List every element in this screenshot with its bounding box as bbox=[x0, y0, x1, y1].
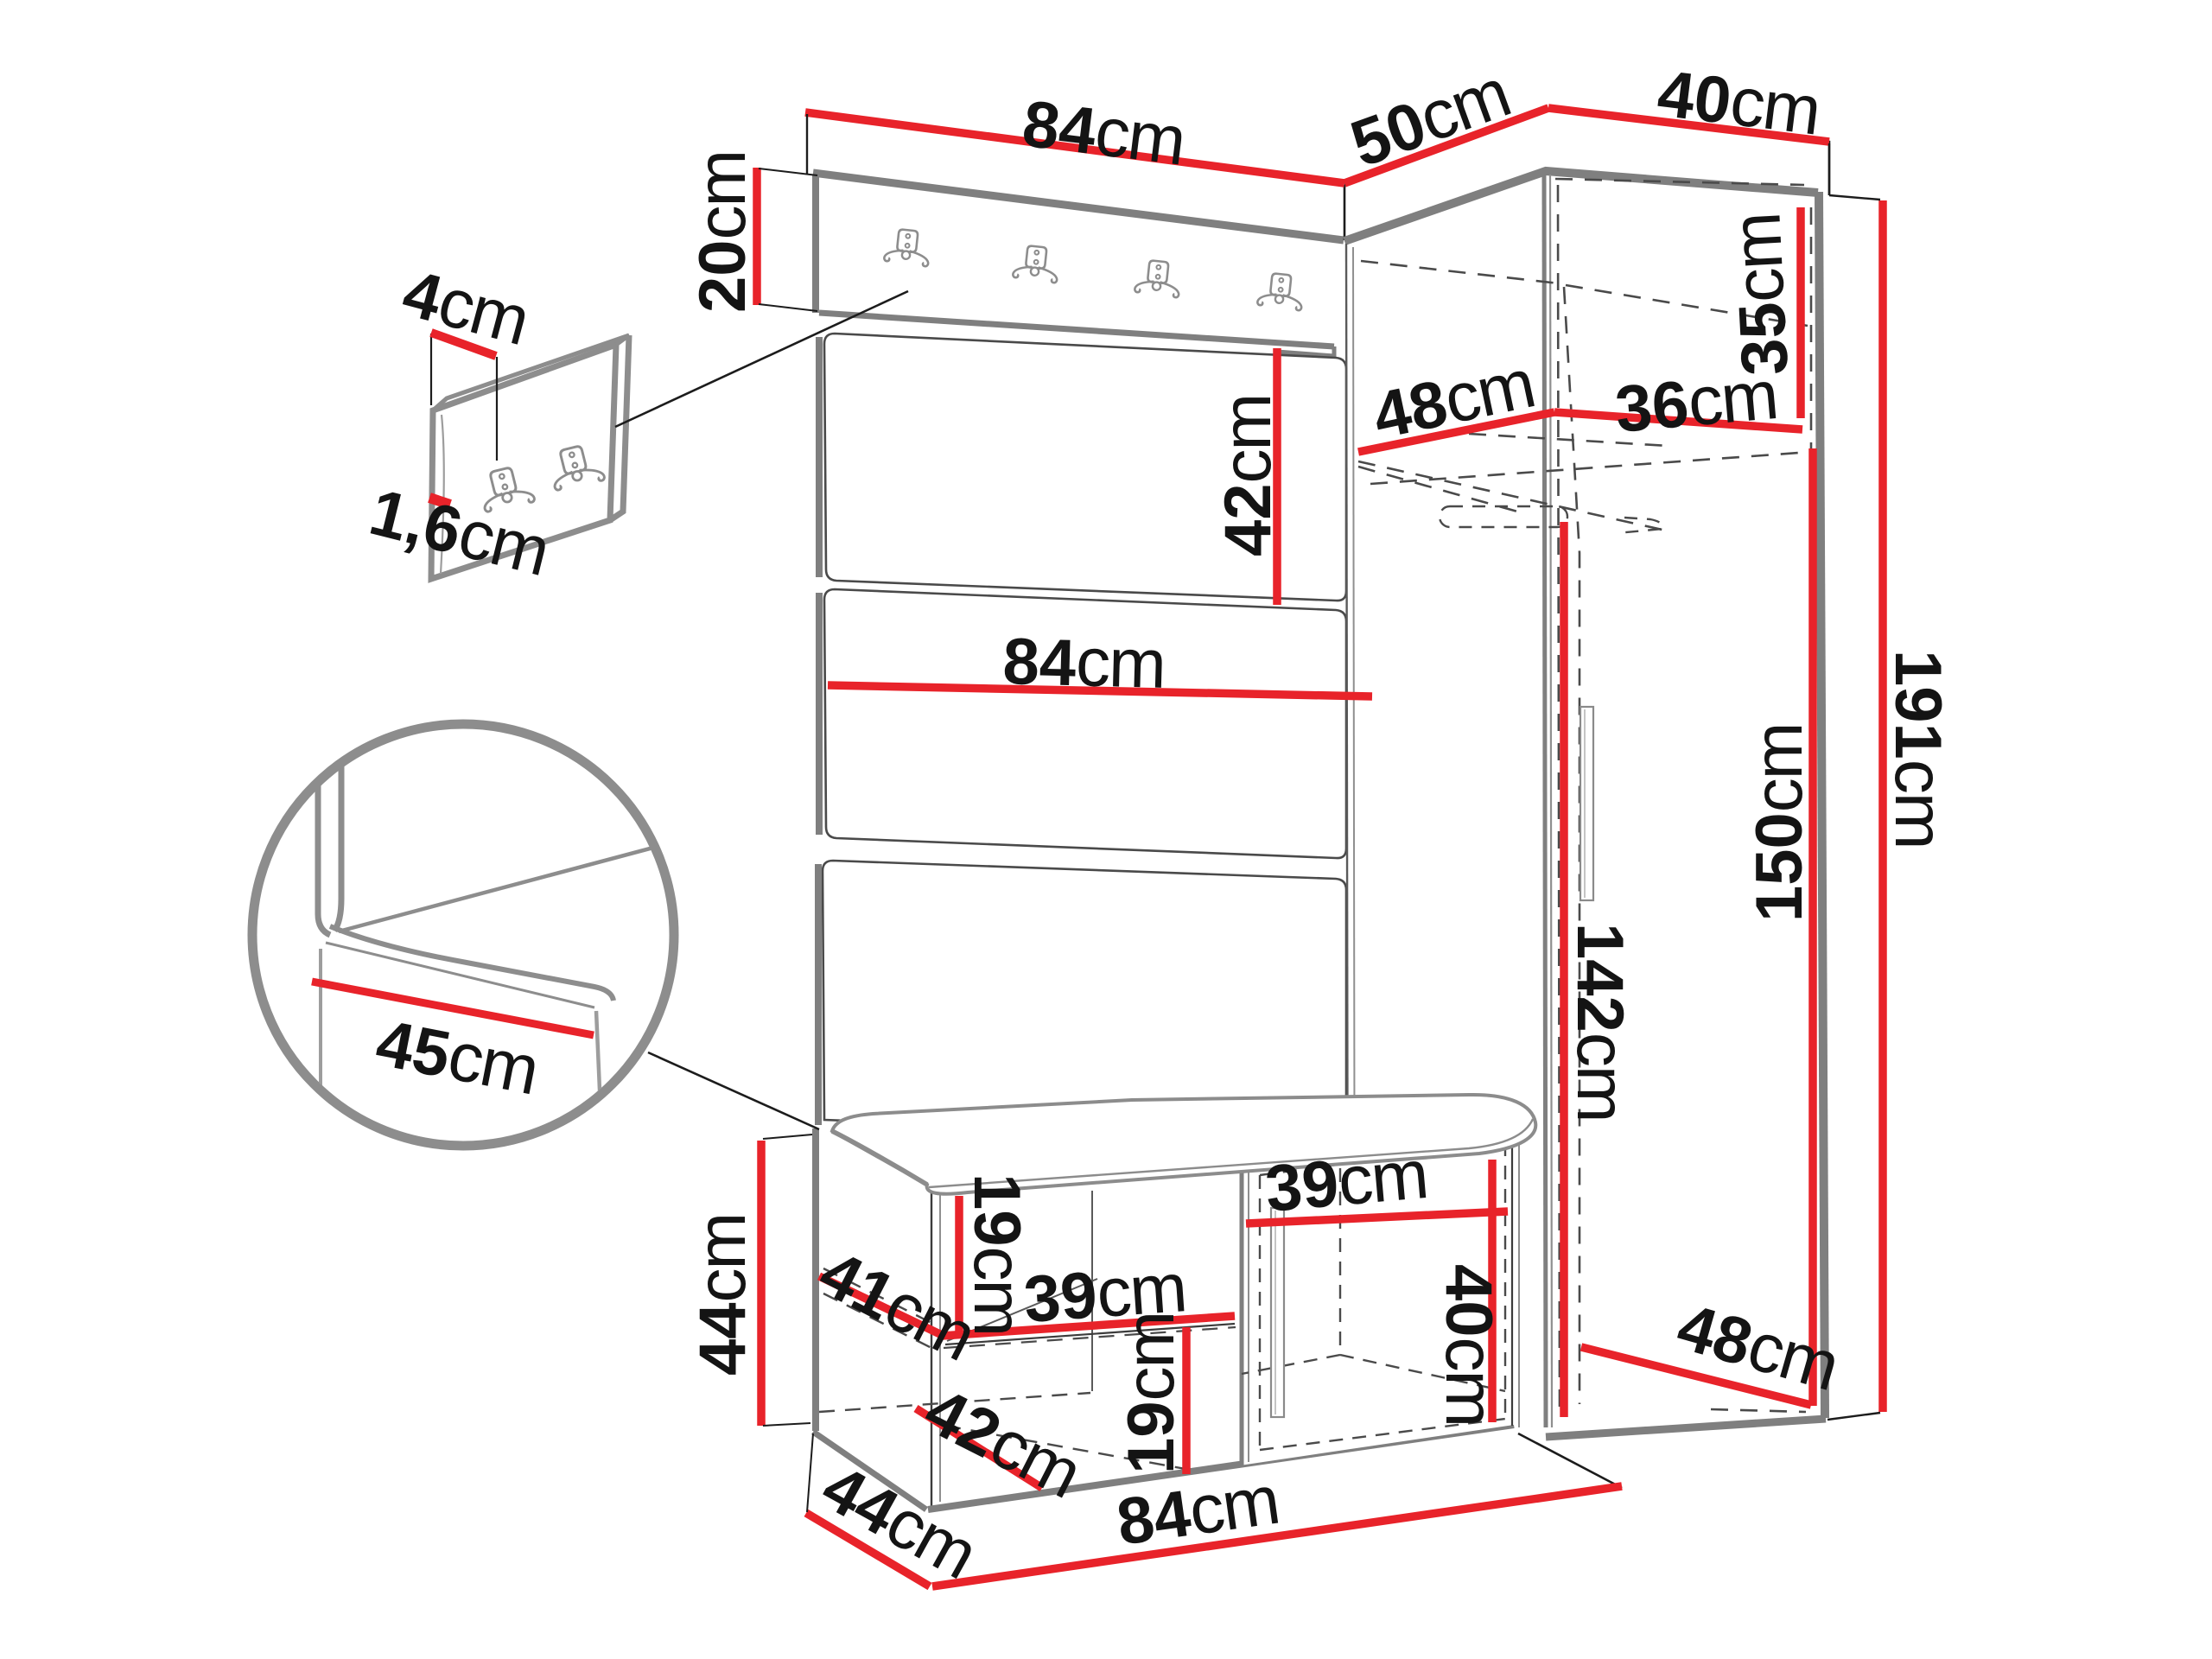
svg-text:191cm: 191cm bbox=[1881, 650, 1958, 848]
svg-text:19cm: 19cm bbox=[1111, 1313, 1188, 1474]
svg-text:40cm: 40cm bbox=[1432, 1264, 1509, 1426]
svg-text:142cm: 142cm bbox=[1563, 923, 1640, 1121]
svg-text:20cm: 20cm bbox=[683, 151, 760, 313]
svg-text:42cm: 42cm bbox=[1208, 395, 1285, 556]
svg-text:150cm: 150cm bbox=[1739, 724, 1816, 922]
svg-text:35cm: 35cm bbox=[1717, 212, 1802, 378]
svg-text:84cm: 84cm bbox=[1002, 621, 1166, 702]
svg-text:19cm: 19cm bbox=[960, 1173, 1037, 1335]
svg-text:44cm: 44cm bbox=[683, 1214, 760, 1376]
